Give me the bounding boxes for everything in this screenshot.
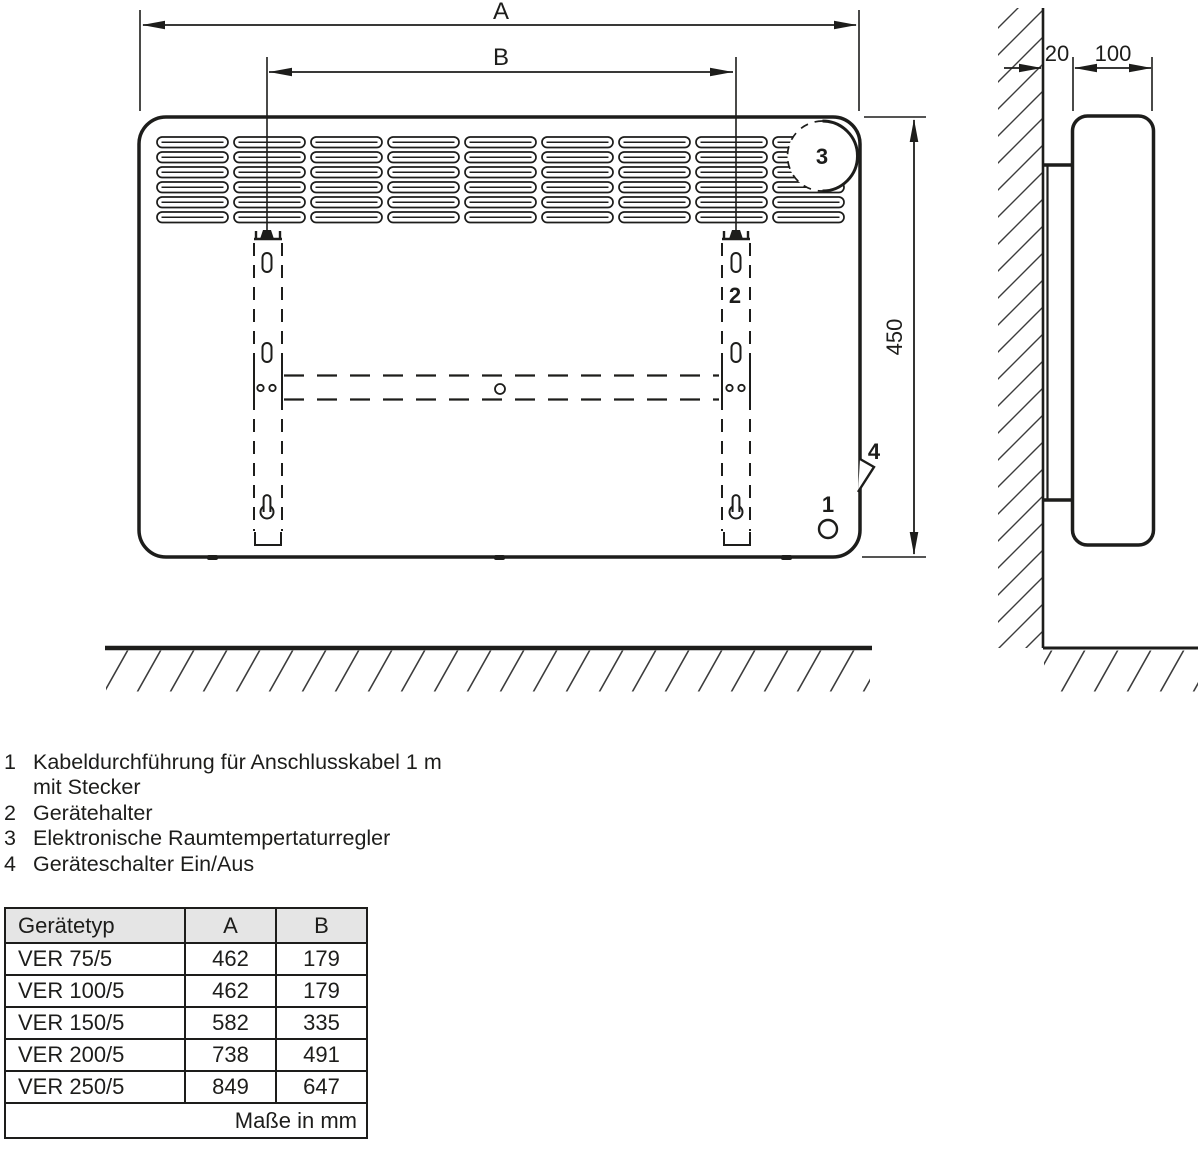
callout-4-label: 4: [868, 439, 881, 464]
legend-text: Geräteschalter Ein/Aus: [33, 852, 254, 877]
installation-drawing-page: A B 450 3 2 4 1: [0, 0, 1200, 1154]
units-note: Maße in mm: [5, 1103, 367, 1138]
table-row: VER 150/5 582 335: [5, 1007, 367, 1039]
col-header-b: B: [276, 908, 367, 943]
legend-item-1: 1 Kabeldurchführung für Anschlusskabel 1…: [4, 750, 442, 801]
dim-a-cell: 582: [185, 1007, 276, 1039]
legend-text-line2: mit Stecker: [33, 775, 442, 800]
wall-hatch: [998, 8, 1043, 648]
legend-number: 4: [4, 852, 33, 877]
legend-text: Gerätehalter: [33, 801, 153, 826]
legend-number: 2: [4, 801, 33, 826]
dim-a-cell: 849: [185, 1071, 276, 1103]
floor-side: [1043, 648, 1198, 692]
dimension-height-450: 450: [862, 117, 926, 557]
dim-b-cell: 647: [276, 1071, 367, 1103]
legend-item-2: 2 Gerätehalter: [4, 801, 442, 826]
legend-text: Kabeldurchführung für Anschlusskabel 1 m…: [33, 750, 442, 801]
legend-item-4: 4 Geräteschalter Ein/Aus: [4, 852, 442, 877]
dim-a-cell: 462: [185, 943, 276, 975]
legend-number: 3: [4, 826, 33, 851]
dim-b-cell: 335: [276, 1007, 367, 1039]
table-row: VER 250/5 849 647: [5, 1071, 367, 1103]
col-header-a: A: [185, 908, 276, 943]
dim-20-label: 20: [1045, 41, 1069, 66]
dim-a-cell: 738: [185, 1039, 276, 1071]
dim-100-label: 100: [1095, 41, 1132, 66]
device-type-cell: VER 100/5: [5, 975, 185, 1007]
legend-text: Elektronische Raumtempertaturregler: [33, 826, 390, 851]
device-type-cell: VER 250/5: [5, 1071, 185, 1103]
dim-b-cell: 179: [276, 975, 367, 1007]
col-header-geraetetyp: Gerätetyp: [5, 908, 185, 943]
dim-b-cell: 179: [276, 943, 367, 975]
table-header-row: Gerätetyp A B: [5, 908, 367, 943]
legend-text-line1: Kabeldurchführung für Anschlusskabel 1 m: [33, 750, 442, 775]
front-view: [139, 117, 874, 560]
dimension-depth-100: 100: [1073, 41, 1152, 111]
device-type-table: Gerätetyp A B VER 75/5 462 179 VER 100/5…: [4, 907, 368, 1139]
heater-side-profile: [1073, 116, 1154, 545]
table-row: VER 200/5 738 491: [5, 1039, 367, 1071]
device-type-cell: VER 200/5: [5, 1039, 185, 1071]
callout-3-label: 3: [816, 144, 828, 169]
table-footer-row: Maße in mm: [5, 1103, 367, 1138]
table-row: VER 100/5 462 179: [5, 975, 367, 1007]
side-bracket: [1043, 165, 1072, 500]
technical-drawing: A B 450 3 2 4 1: [0, 0, 1200, 730]
dim-b-label: B: [493, 44, 509, 71]
floor-front: [105, 648, 872, 692]
device-type-cell: VER 150/5: [5, 1007, 185, 1039]
dim-height-label: 450: [882, 319, 907, 356]
side-view: 20 100: [998, 8, 1198, 692]
device-type-cell: VER 75/5: [5, 943, 185, 975]
callout-2-label: 2: [729, 283, 741, 308]
dim-b-cell: 491: [276, 1039, 367, 1071]
legend-number: 1: [4, 750, 33, 801]
legend-item-3: 3 Elektronische Raumtempertaturregler: [4, 826, 442, 851]
callout-1-label: 1: [822, 492, 834, 517]
table-row: VER 75/5 462 179: [5, 943, 367, 975]
dim-a-cell: 462: [185, 975, 276, 1007]
dim-a-label: A: [493, 0, 509, 25]
legend: 1 Kabeldurchführung für Anschlusskabel 1…: [4, 750, 442, 877]
